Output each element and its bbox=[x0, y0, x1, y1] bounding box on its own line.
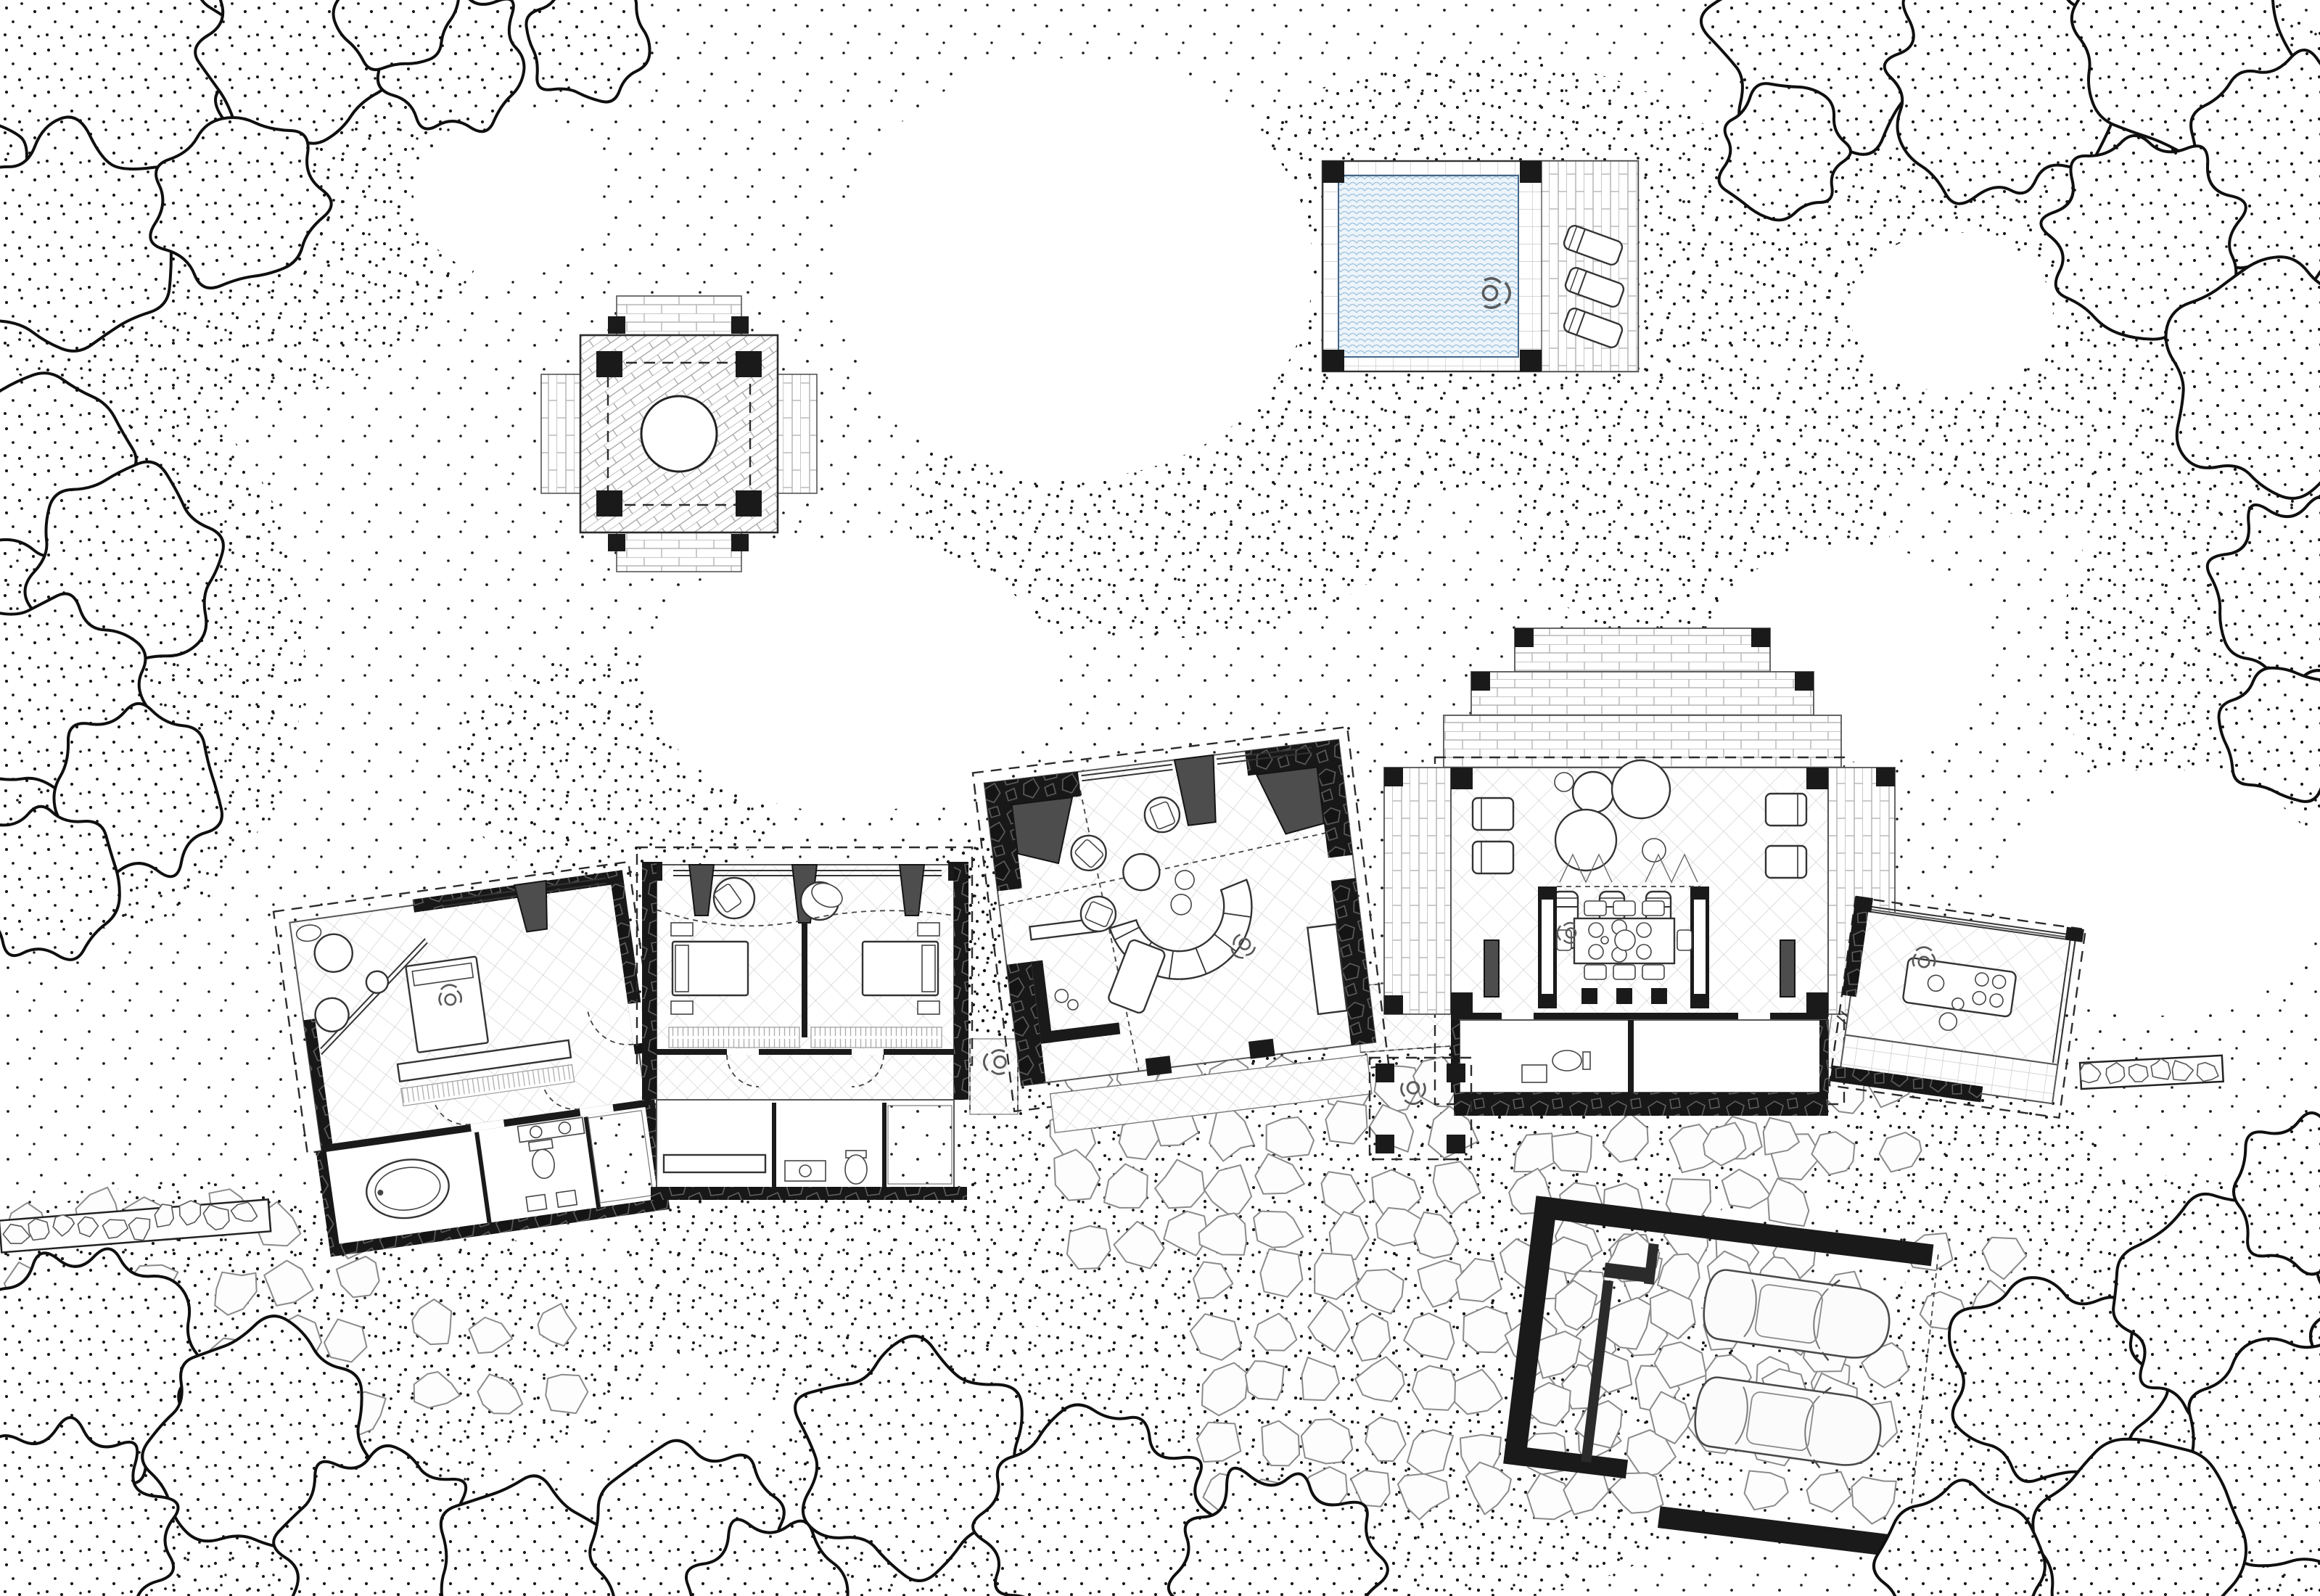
north-terrace-step-1 bbox=[1515, 628, 1770, 672]
wardrobe-right bbox=[811, 1027, 942, 1048]
twin-east-wall bbox=[954, 862, 968, 1100]
wardrobe-left bbox=[669, 1027, 799, 1048]
pavilion-post bbox=[731, 534, 749, 551]
pavilion-post bbox=[608, 316, 625, 334]
round-table bbox=[1612, 760, 1670, 818]
bath-shower bbox=[888, 1106, 952, 1184]
pavilion-step bbox=[778, 374, 817, 493]
pool-column bbox=[1323, 350, 1344, 371]
round-table bbox=[1573, 772, 1613, 813]
pavilion-column bbox=[736, 351, 762, 377]
west-side-terrace bbox=[1384, 768, 1451, 1014]
pavilion-post bbox=[731, 316, 749, 334]
entry-hall-floor bbox=[1460, 1020, 1828, 1093]
ground-clearing bbox=[1850, 232, 2053, 392]
twin-corridor-floor bbox=[657, 1053, 954, 1100]
pavilion-column bbox=[596, 351, 622, 377]
bath-toilet bbox=[845, 1155, 867, 1184]
pavilion-step bbox=[541, 374, 580, 493]
pavilion-step bbox=[617, 532, 741, 572]
garden-pavilion bbox=[541, 296, 817, 572]
twin-partition bbox=[802, 923, 807, 1037]
pavilion-column bbox=[736, 490, 762, 517]
twin-bedrooms bbox=[637, 847, 972, 1200]
pool-column bbox=[1323, 161, 1344, 183]
twin-south-wall bbox=[651, 1187, 967, 1200]
swimming-pool bbox=[1323, 161, 1638, 371]
pool-column bbox=[1520, 161, 1542, 183]
pavilion-step bbox=[617, 296, 741, 335]
kitchen-south-stone-wall bbox=[1454, 1093, 1828, 1116]
pool-column bbox=[1520, 350, 1542, 371]
wc-sink bbox=[1522, 1065, 1547, 1082]
wc-toilet bbox=[1552, 1050, 1581, 1071]
site-plan-drawing bbox=[0, 0, 2320, 1596]
porch-column bbox=[1447, 1135, 1465, 1153]
ground-clearing bbox=[834, 58, 1313, 479]
pavilion-oculus bbox=[641, 396, 717, 472]
twin-west-wall bbox=[642, 862, 657, 1100]
master-suite bbox=[273, 862, 677, 1258]
porch-column bbox=[1375, 1135, 1394, 1153]
pavilion-column bbox=[596, 490, 622, 517]
pool-water bbox=[1338, 176, 1518, 357]
round-table bbox=[1555, 810, 1616, 871]
master-shower bbox=[588, 1111, 654, 1203]
north-terrace-step-2 bbox=[1471, 672, 1814, 715]
porch-column bbox=[1375, 1064, 1394, 1082]
ground-clearing bbox=[414, 116, 602, 276]
pavilion-post bbox=[608, 534, 625, 551]
site-plan-canvas bbox=[0, 0, 2320, 1596]
bath-bench bbox=[664, 1155, 765, 1172]
porch-column bbox=[1447, 1064, 1465, 1082]
